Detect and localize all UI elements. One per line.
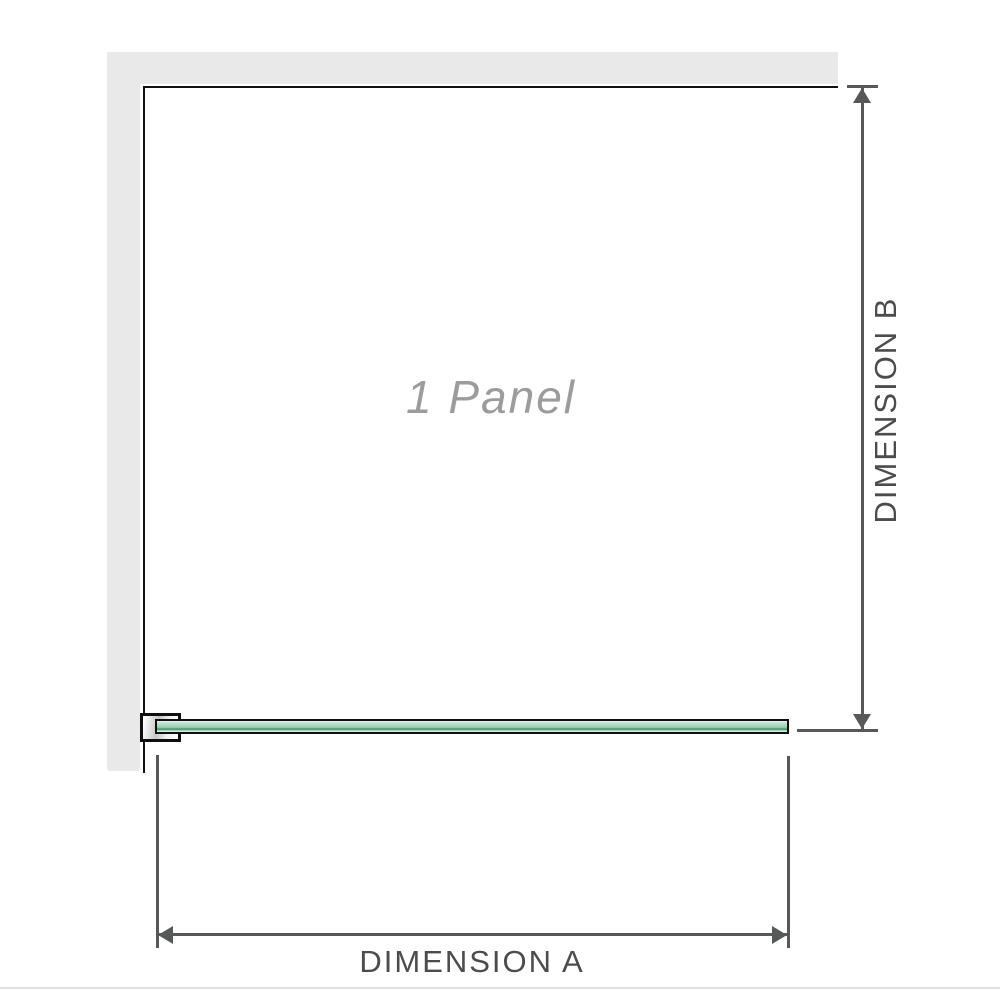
glass-panel: [155, 719, 789, 734]
arrow-left-icon: [158, 926, 173, 944]
wall-top-bar: [107, 52, 838, 84]
dimension-diagram: 1 Panel DIMENSION B DIMENSION A: [0, 0, 1000, 1000]
dimension-b-label: DIMENSION B: [868, 297, 904, 524]
dimension-b-tick-bottom: [797, 729, 878, 732]
dimension-a-line: [157, 933, 788, 936]
wall-left-bar: [107, 52, 140, 771]
panel-outline-left: [143, 86, 145, 773]
arrow-up-icon: [853, 88, 871, 103]
panel-count-label: 1 Panel: [406, 370, 576, 424]
image-bottom-edge-line: [0, 987, 1000, 989]
panel-outline-top: [143, 86, 838, 88]
dimension-b-line: [861, 87, 864, 731]
dimension-a-label: DIMENSION A: [359, 944, 584, 980]
dimension-a-extension-left: [156, 755, 159, 948]
arrow-down-icon: [853, 714, 871, 729]
arrow-right-icon: [772, 926, 787, 944]
dimension-a-extension-right: [787, 756, 790, 948]
